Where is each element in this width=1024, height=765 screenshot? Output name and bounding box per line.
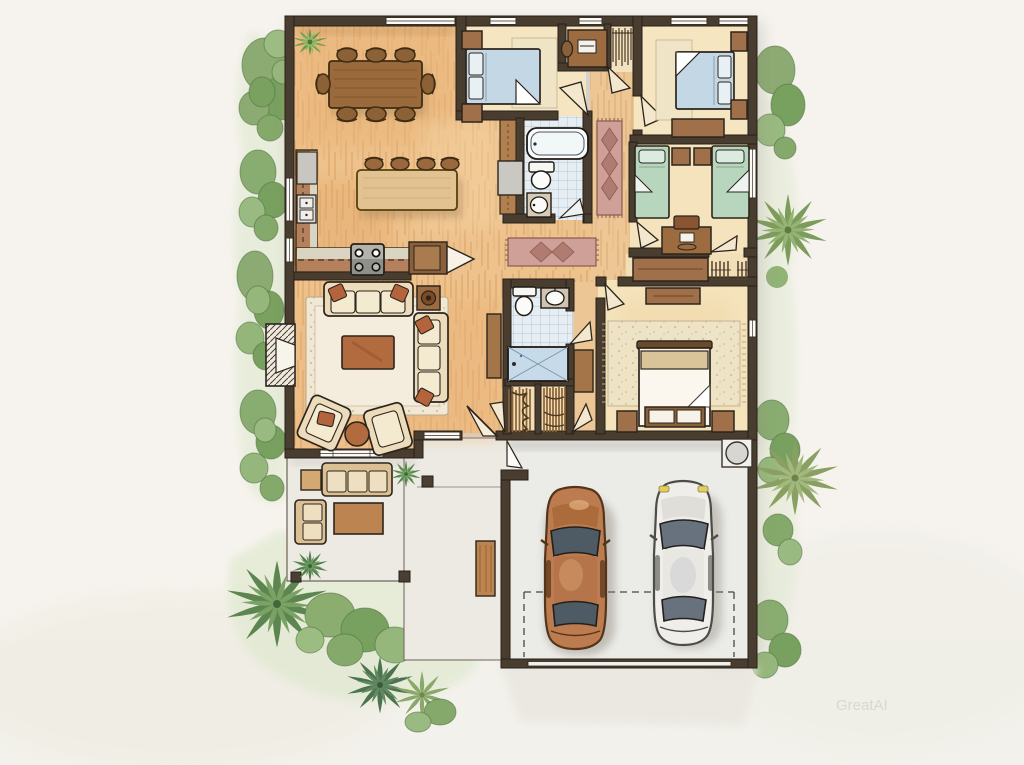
svg-text:GreatAI: GreatAI [836,697,888,714]
